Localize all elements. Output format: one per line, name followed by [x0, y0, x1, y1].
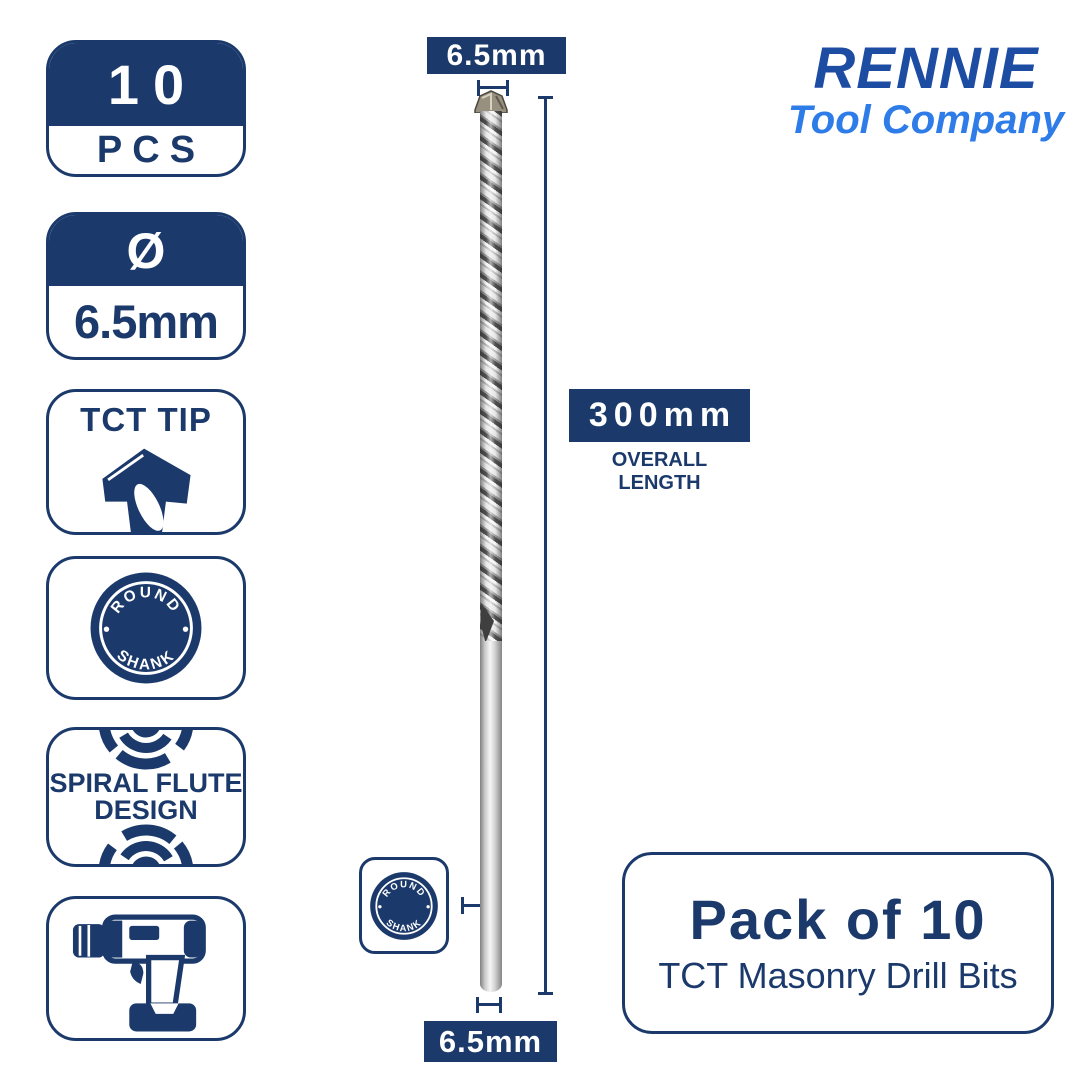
overall-length-value: 300mm — [569, 389, 750, 442]
piece-count-value: 10 — [49, 43, 243, 126]
badge-tct-tip: TCT TIP — [46, 389, 246, 535]
power-drill-icon — [63, 903, 229, 1035]
overall-length-caption: OVERALL LENGTH — [569, 449, 750, 495]
tct-tip-label: TCT TIP — [80, 401, 212, 439]
bottom-diameter-label: 6.5mm — [424, 1021, 557, 1062]
brand-logo: RENNIE Tool Company — [783, 40, 1069, 142]
spiral-flute-label-line1: SPIRAL FLUTE — [49, 770, 243, 797]
badge-spiral-flute: SPIRAL FLUTE DESIGN — [46, 727, 246, 867]
pack-description-box: Pack of 10 TCT Masonry Drill Bits — [622, 852, 1054, 1034]
badge-round-shank: ROUND SHANK — [46, 556, 246, 700]
drill-bit-flute — [480, 111, 502, 641]
round-shank-tag-emblem: ROUND SHANK — [368, 870, 440, 942]
brand-tagline: Tool Company — [783, 98, 1069, 142]
dimension-marker-bottom — [476, 997, 502, 1013]
pack-subtitle: TCT Masonry Drill Bits — [658, 955, 1017, 997]
tct-tip-icon — [90, 441, 202, 532]
shank-pointer-line — [461, 904, 480, 907]
diameter-symbol-icon: Ø — [49, 215, 243, 286]
piece-count-unit: PCS — [49, 126, 243, 174]
badge-power-drill — [46, 896, 246, 1041]
product-infographic: 10 PCS Ø 6.5mm TCT TIP ROUND SHANK — [0, 0, 1081, 1081]
round-shank-emblem: ROUND SHANK — [87, 569, 205, 687]
overall-length-dimension-line — [538, 96, 553, 995]
drill-bit-shank — [480, 641, 502, 992]
round-shank-tag: ROUND SHANK — [359, 857, 449, 954]
badge-piece-count: 10 PCS — [46, 40, 246, 177]
drill-bit-tip — [474, 90, 508, 113]
top-diameter-label: 6.5mm — [427, 37, 566, 74]
diameter-value: 6.5mm — [49, 286, 243, 357]
pack-title: Pack of 10 — [689, 889, 986, 951]
brand-name: RENNIE — [783, 40, 1069, 98]
spiral-flute-icon-bottom — [49, 814, 243, 864]
badge-diameter: Ø 6.5mm — [46, 212, 246, 360]
